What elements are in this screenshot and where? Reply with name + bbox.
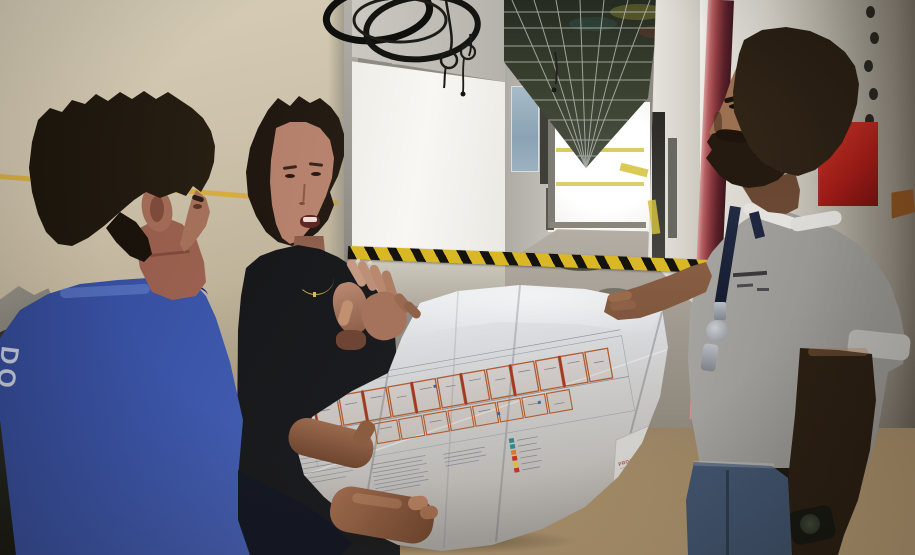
worker-blue-shirt-man: DO bbox=[0, 0, 915, 555]
worker-hand-lower-finger-2 bbox=[419, 505, 439, 520]
blue-tshirt-torso bbox=[0, 0, 915, 555]
worker-ear-inner bbox=[150, 196, 164, 222]
construction-site-photo: PROJETO ARQUITETÔNICO bbox=[0, 0, 915, 555]
worker-eye-hollow bbox=[193, 204, 202, 209]
